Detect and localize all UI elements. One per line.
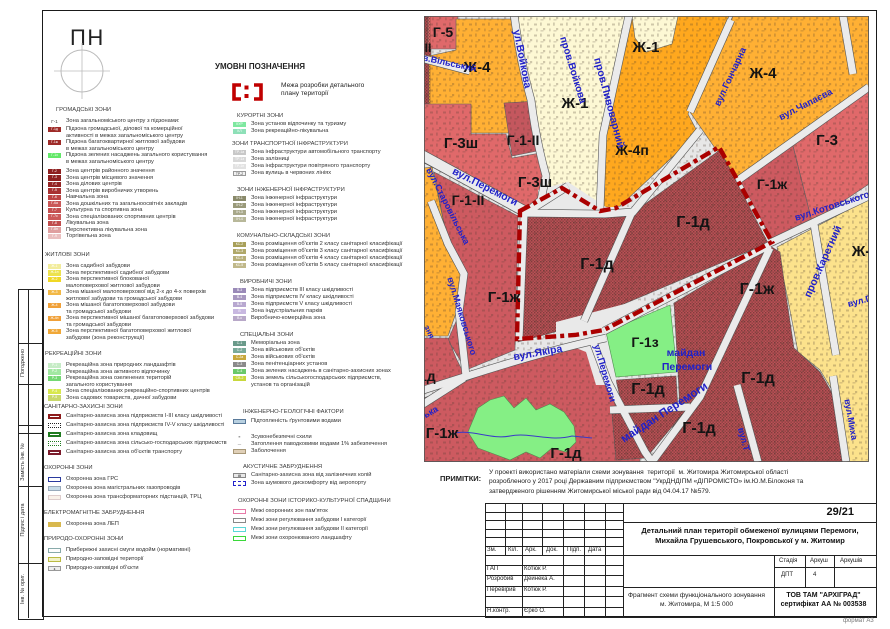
svg-text:Г-1ж: Г-1ж (740, 281, 775, 298)
svg-text:Г-3: Г-3 (816, 132, 838, 149)
svg-text:Г-1д: Г-1д (424, 368, 436, 384)
svg-text:майдан: майдан (667, 347, 706, 359)
svg-text:Г-1ж: Г-1ж (488, 289, 521, 306)
svg-text:Г-1ж: Г-1ж (757, 176, 788, 192)
svg-text:Г-1д: Г-1д (741, 370, 774, 387)
svg-text:Г-3ш: Г-3ш (444, 135, 478, 152)
svg-text:Г-1д: Г-1д (550, 445, 582, 462)
svg-text:Г-1д: Г-1д (580, 256, 613, 273)
svg-text:Ж-1: Ж-1 (632, 39, 660, 56)
svg-text:Г-1-ІІ: Г-1-ІІ (452, 192, 485, 208)
svg-text:Ж-: Ж- (851, 243, 869, 260)
svg-text:Г-5: Г-5 (433, 24, 454, 40)
svg-text:Г-1з: Г-1з (631, 334, 658, 350)
svg-text:Г-1д: Г-1д (676, 214, 709, 231)
svg-text:Г-1-ІІ: Г-1-ІІ (507, 132, 540, 148)
svg-text:Перемоги: Перемоги (662, 361, 712, 373)
svg-text:Г-1ж: Г-1ж (426, 425, 459, 442)
svg-text:Г-1д: Г-1д (631, 381, 664, 398)
svg-text:Г-1д: Г-1д (682, 420, 715, 437)
svg-text:Ж-4: Ж-4 (749, 65, 778, 82)
svg-text:Г-3ш: Г-3ш (518, 174, 552, 191)
